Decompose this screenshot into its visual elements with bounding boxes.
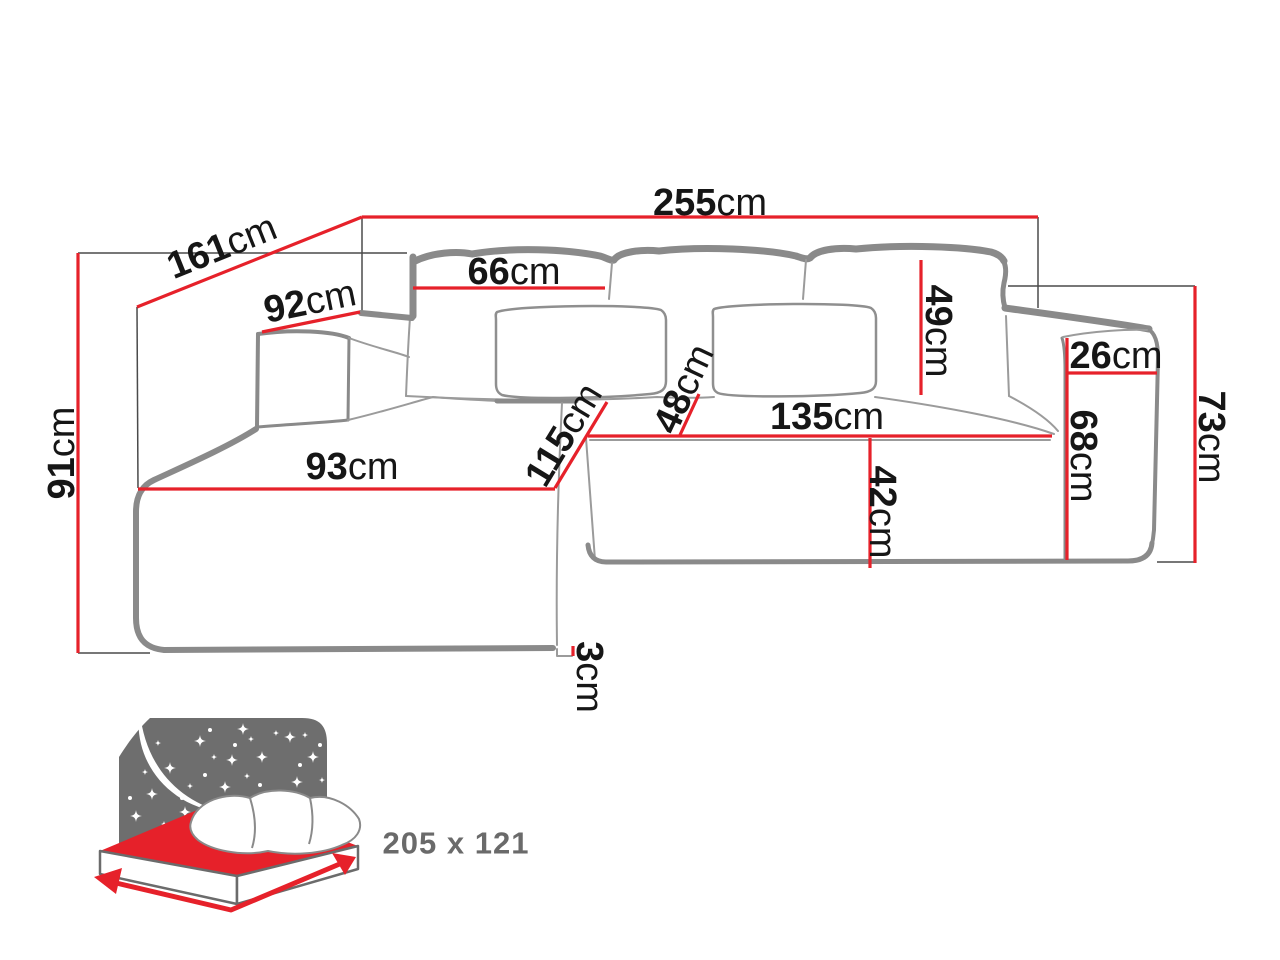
seat-armrest-seam	[1009, 396, 1058, 431]
cushion-divider-1	[609, 263, 612, 299]
label-right-armrest-height: 68cm	[1062, 410, 1104, 503]
label-chaise-width: 93cm	[306, 446, 399, 488]
right-armrest-top-back-edge	[1005, 308, 1149, 329]
left-armrest-right-edge	[348, 338, 349, 420]
label-back-cushion-height: 49cm	[917, 285, 959, 378]
seat-top-seam-right	[875, 397, 1054, 434]
label-seat-width: 135cm	[770, 396, 884, 438]
left-armrest-left-edge	[257, 334, 258, 427]
star-dot	[298, 763, 302, 767]
left-armrest-top-back-edge	[361, 313, 412, 318]
star-dot	[318, 743, 322, 747]
label-left-armrest-top: 92cm	[260, 272, 359, 332]
star-dot	[148, 758, 152, 762]
armrest-seat-seam-top	[349, 338, 409, 357]
star-dot	[180, 796, 184, 800]
left-armrest-bottom	[257, 420, 348, 427]
back-cushion-right-side	[1006, 316, 1009, 396]
label-chaise-side-depth: 161cm	[161, 206, 283, 287]
label-leg-height: 3cm	[568, 641, 610, 713]
cushion-divider-2	[803, 260, 806, 299]
label-right-armrest-width: 26cm	[1070, 335, 1163, 377]
seat-left-crease	[586, 438, 595, 560]
label-total-height: 91cm	[41, 407, 83, 500]
left-armrest-front-top	[258, 331, 349, 338]
star-dot	[128, 796, 132, 800]
back-right-edge	[1002, 259, 1006, 308]
extension-161-corner	[137, 307, 138, 488]
sleeping-size-label: 205 x 121	[383, 826, 530, 861]
star-dot	[258, 783, 262, 787]
label-seat-front-height: 42cm	[861, 466, 903, 559]
armrest-seat-seam-bottom	[348, 397, 433, 420]
label-right-side-height: 73cm	[1190, 391, 1232, 484]
star-dot	[203, 773, 207, 777]
label-total-width: 255cm	[653, 182, 767, 224]
sofa-dimension-diagram: 255cm 161cm 92cm 91cm 66cm 49cm 26cm 68c…	[0, 0, 1280, 960]
star-dot	[208, 728, 212, 732]
sleeping-function-icon	[94, 713, 360, 910]
label-back-cushion-width: 66cm	[468, 251, 561, 293]
star-dot	[233, 743, 237, 747]
front-pillow-right	[713, 304, 876, 396]
pillows-bedding	[190, 790, 360, 853]
